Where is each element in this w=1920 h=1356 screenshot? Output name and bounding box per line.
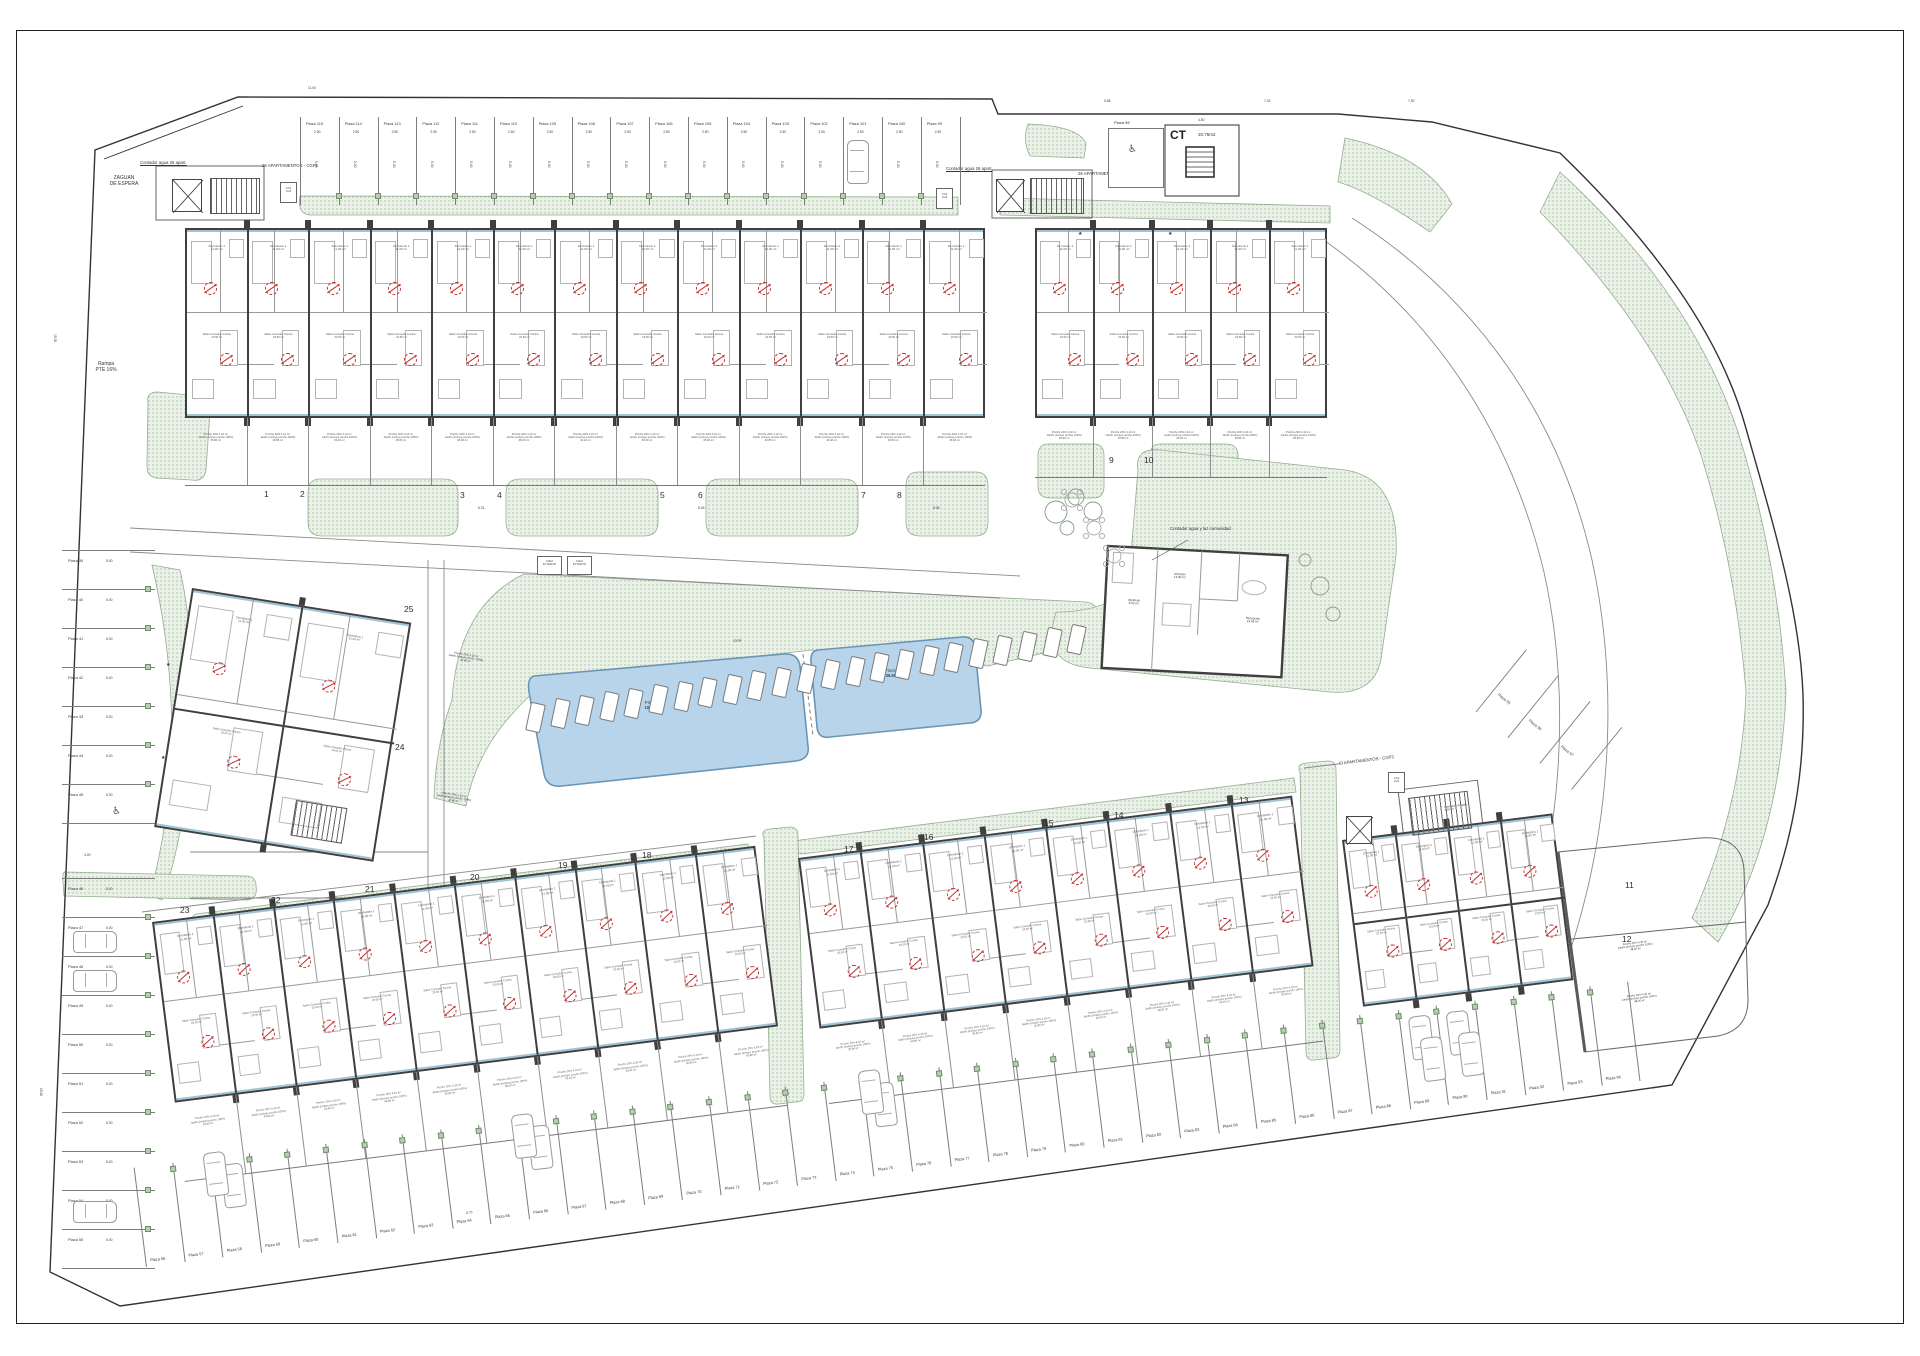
stall-divider <box>455 117 456 205</box>
red-marker-icon <box>297 954 312 969</box>
garden-label: Porche 20% 4.10 m² Jardín (incluye porch… <box>1193 990 1255 1007</box>
plaza-label: Plaza 62 <box>380 1227 396 1234</box>
room-label: Salón-Comedor-Cocina 23.50 m² <box>556 334 616 340</box>
building-outline: Dormitorio 1 11.00 m²Salón-Comedor-Cocin… <box>1035 228 1327 418</box>
stall-divider <box>843 117 844 205</box>
room-label: Salón-Comedor-Cocina 23.50 m² <box>864 334 924 340</box>
stall-planter <box>1242 1032 1249 1039</box>
sofa-icon <box>539 1016 563 1038</box>
stall-depth-dim: 5.00 <box>106 965 112 969</box>
red-marker-icon <box>1132 864 1147 879</box>
stall-divider <box>62 878 155 879</box>
stall-planter <box>476 1127 483 1134</box>
sofa-icon <box>192 379 214 400</box>
partition-wall <box>1057 894 1117 903</box>
red-marker-icon <box>909 956 924 971</box>
unit-cell: Dormitorio 1 11.00 m²Salón-Comedor-Cocin… <box>925 230 987 416</box>
red-marker-icon <box>720 901 735 916</box>
stall-divider <box>649 117 650 205</box>
red-marker-icon <box>1280 909 1295 924</box>
block-number: 22 <box>271 895 280 905</box>
garden-label: Porche 20% 4.10 m² Jardín (incluye porch… <box>884 1029 946 1046</box>
cc-luz-box: CC1 LUZ <box>280 182 297 203</box>
stall-planter <box>1395 1013 1402 1020</box>
wall-stub <box>450 876 457 885</box>
garden-label: Porche 20% 4.10 m² Jardín (incluye porch… <box>678 433 739 443</box>
partition-wall <box>405 964 463 972</box>
dimension-label: 6.31 <box>478 506 484 510</box>
garden-label: Porche 20% 4.10 m² Jardín (incluye porch… <box>359 1089 420 1106</box>
stall-depth-dim: 5.00 <box>586 161 590 167</box>
stall-divider <box>1551 991 1564 1090</box>
partition-wall <box>741 364 766 365</box>
garden-cell: Porche 20% 4.10 m² Jardín (incluye porch… <box>739 418 801 485</box>
plaza-label: Plaza 74 <box>839 1170 855 1177</box>
stall-depth-dim: 5.00 <box>780 161 784 167</box>
plaza-label: Plaza 60 <box>303 1236 319 1243</box>
garden-cell: Porche 20% 4.10 m² Jardín (incluye porch… <box>862 418 924 485</box>
room-label: Dormitorio 1 11.00 m² <box>1095 245 1151 252</box>
star-icon: ★ <box>1078 231 1082 237</box>
sofa-icon <box>376 379 398 400</box>
plaza-label: Plaza 102 <box>810 121 827 126</box>
rampa-label: Rampa PTE 16% <box>84 362 128 374</box>
stall-planter <box>1127 1046 1134 1053</box>
unit-cell: Dormitorio 1 11.00 m²Salón-Comedor-Cocin… <box>1271 230 1329 416</box>
partition-wall <box>1185 230 1186 312</box>
plaza-label: Plaza 94 <box>1605 1074 1621 1081</box>
unit-cell: Dormitorio 1 11.00 m²Salón-Comedor-Cocin… <box>310 230 372 416</box>
red-marker-icon <box>343 353 356 366</box>
plaza-label: Plaza 52 <box>68 1120 83 1125</box>
stall-planter <box>375 193 381 199</box>
stall-planter <box>1050 1056 1057 1063</box>
red-marker-icon <box>696 282 709 295</box>
elevator-icon <box>172 179 202 212</box>
sun-lounger-icon <box>648 684 669 715</box>
sun-lounger-icon <box>919 645 940 676</box>
plaza-label: Plaza 63 <box>418 1222 434 1229</box>
garden-cell: Porche 20% 4.10 m² Jardín (incluye porch… <box>1210 418 1268 477</box>
stall-divider <box>62 589 155 590</box>
star-icon: ★ <box>1168 231 1172 237</box>
wall-stub <box>244 220 250 228</box>
partition-wall <box>889 230 890 312</box>
partition-wall <box>1124 938 1149 942</box>
room-label: Dormitorio 1 11.00 m² <box>1154 245 1210 252</box>
room-label: Dormitorio 1 11.00 m² <box>925 245 987 252</box>
stall-depth-dim: 5.00 <box>624 161 628 167</box>
plaza-label: Plaza 75 <box>878 1165 894 1172</box>
garden-label: Porche 20% 4.10 m² Jardín (incluye porch… <box>801 433 862 443</box>
red-marker-icon <box>774 353 787 366</box>
garden-label: Porche 20% 4.10 m² Jardín (incluye porch… <box>238 1105 299 1122</box>
sofa-icon <box>1365 969 1386 990</box>
red-marker-icon <box>573 282 586 295</box>
garden-band: Porche 20% 4.10 m² Jardín (incluye porch… <box>1035 418 1327 478</box>
partition-wall <box>343 230 344 312</box>
plaza-label: Plaza 113 <box>384 121 401 126</box>
stall-divider <box>921 117 922 205</box>
garden-cell: Porche 20% 4.10 m² Jardín (incluye porch… <box>616 418 678 485</box>
stall-planter <box>246 1156 253 1163</box>
plaza-label: Plaza 71 <box>724 1184 740 1191</box>
partition-wall <box>1236 230 1237 312</box>
plaza-label: Plaza 112 <box>422 121 439 126</box>
stall-divider <box>134 1168 147 1267</box>
unit-cell: Dormitorio 1 11.00 m²Salón-Comedor-Cocin… <box>187 230 249 416</box>
stall-planter <box>145 586 151 592</box>
stall-depth-dim: 5.00 <box>106 1004 112 1008</box>
sun-lounger-icon <box>943 641 964 672</box>
stall-planter <box>1433 1008 1440 1015</box>
plaza-label: Plaza 96 <box>1528 718 1543 731</box>
red-marker-icon <box>418 939 433 954</box>
block-number: 10 <box>1144 455 1153 465</box>
plaza-label: Plaza 99 <box>927 121 942 126</box>
stall-depth-dim: 5.00 <box>935 161 939 167</box>
stall-planter <box>145 781 151 787</box>
sun-lounger-icon <box>550 698 571 729</box>
garden-label: Porche 20% 4.10 m² Jardín (incluye porch… <box>185 433 247 443</box>
wall-stub <box>856 842 863 851</box>
stall-depth-dim: 5.00 <box>314 161 318 167</box>
block-number: 9 <box>1109 455 1114 465</box>
partition-wall <box>871 918 931 927</box>
stall-planter <box>336 193 342 199</box>
partition-wall <box>643 230 644 312</box>
stall-planter <box>821 1084 828 1091</box>
plaza-label: Plaza 115 <box>306 121 323 126</box>
stall-divider <box>62 1190 155 1191</box>
stall-divider <box>378 117 379 205</box>
plaza-label: Plaza 105 <box>694 121 711 126</box>
stall-depth-dim: 5.00 <box>741 161 745 167</box>
partition-wall <box>1095 312 1151 313</box>
garden-label: Porche 20% 4.10 m² Jardín (incluye porch… <box>1131 998 1193 1015</box>
red-marker-icon <box>358 947 373 962</box>
red-marker-icon <box>1032 941 1047 956</box>
sun-lounger-icon <box>771 666 792 697</box>
room-label: Salón-Comedor-Cocina 23.50 m² <box>741 334 801 340</box>
stall-planter <box>1548 994 1555 1001</box>
plaza-label: Plaza 76 <box>916 1160 932 1167</box>
plaza-label: Plaza 44 <box>68 753 83 758</box>
wall-stub <box>260 844 267 853</box>
red-marker-icon <box>1094 933 1109 948</box>
partition-wall <box>287 711 397 729</box>
car-icon <box>847 140 869 184</box>
garden-cell: Porche 20% 4.10 m² Jardín (incluye porch… <box>1190 974 1261 1056</box>
block-number: 4 <box>497 490 502 500</box>
unit-cell: Dormitorio 1 11.00 m²Salón-Comedor-Cocin… <box>618 230 680 416</box>
dimension-label: 5.88 <box>1104 99 1110 103</box>
room-label: Salón-Comedor-Cocina 23.50 m² <box>1212 334 1268 340</box>
plaza-label: Plaza 104 <box>733 121 750 126</box>
block-number: 3 <box>460 490 465 500</box>
contador-26-left-label: Contador agua 26 apart. <box>140 161 187 166</box>
stall-divider <box>62 1073 155 1074</box>
room-label: Salón-Comedor-Cocina 23.50 m² <box>187 334 247 340</box>
stall-depth-dim: 5.00 <box>106 1082 112 1086</box>
partition-wall <box>372 312 432 313</box>
wall-stub <box>1090 220 1096 228</box>
partition-wall <box>276 777 322 785</box>
plaza-label: Plaza 84 <box>1222 1122 1238 1129</box>
sofa-icon <box>807 379 829 400</box>
sofa-icon <box>746 379 768 400</box>
partition-wall <box>679 312 739 313</box>
building-outline: Dormitorio 1 11.00 m²Salón-Comedor-Cocin… <box>154 588 411 862</box>
room-label: Dormitorio 1 11.00 m² <box>1037 245 1093 252</box>
stall-width-dim: 2.50 <box>547 130 553 134</box>
partition-wall <box>1412 950 1433 954</box>
stall-planter <box>1165 1042 1172 1049</box>
unit-cell: Dormitorio 1 11.00 m²Salón-Comedor-Cocin… <box>1212 230 1270 416</box>
red-marker-icon <box>599 916 614 931</box>
garden-label: Porche 20% 4.10 m² Jardín (incluye porch… <box>1270 431 1327 441</box>
stall-divider <box>1513 996 1526 1095</box>
sun-lounger-icon <box>1017 631 1038 662</box>
block-number: 23 <box>180 905 189 915</box>
building-outline: Dormitorio 1 11.00 m²Salón-Comedor-Cocin… <box>1342 813 1573 1006</box>
partition-wall <box>593 994 618 998</box>
dimension-label: 4.80 <box>1198 118 1204 122</box>
partition-wall <box>433 312 493 313</box>
dimension-label: 8.45 <box>698 506 704 510</box>
stall-divider <box>62 995 155 996</box>
stall-planter <box>607 193 613 199</box>
dimension-label: 7.50 <box>1408 99 1414 103</box>
partition-wall <box>220 230 221 312</box>
sun-lounger-icon <box>574 695 595 726</box>
room-label: Dormitorio 1 11.00 m² <box>372 245 432 252</box>
partition-wall <box>618 364 643 365</box>
partition-wall <box>1212 312 1268 313</box>
plaza-label: Plaza 95 <box>1496 692 1511 705</box>
wall-stub <box>490 220 496 228</box>
garden-label: Porche 20% 4.10 m² Jardín (incluye porch… <box>740 433 801 443</box>
block-number: 15 <box>1044 818 1053 828</box>
garden-cell: Porche 20% 4.10 m² Jardín (incluye porch… <box>416 1064 486 1150</box>
plaza-label: Plaza 108 <box>578 121 595 126</box>
garden-label: Porche 20% 4.10 m² Jardín (incluye porch… <box>1035 431 1093 441</box>
stall-planter <box>1472 1003 1479 1010</box>
partition-wall <box>647 933 705 941</box>
sofa-icon <box>1042 379 1063 400</box>
plaza-label: Plaza 56 <box>150 1256 166 1263</box>
wall-stub <box>859 220 865 228</box>
plaza-label: Plaza 43 <box>68 714 83 719</box>
stall-width-dim: 2.50 <box>508 130 514 134</box>
block-number: 7 <box>861 490 866 500</box>
red-marker-icon <box>659 909 674 924</box>
stall-planter <box>801 193 807 199</box>
partition-wall <box>1037 312 1093 313</box>
wall-stub <box>1103 811 1110 820</box>
garden-cell: Porche 20% 4.10 m² Jardín (incluye porch… <box>370 418 432 485</box>
partition-wall <box>864 364 889 365</box>
unit-cell: Dormitorio 1 11.00 m²Salón-Comedor-Cocin… <box>1037 230 1095 416</box>
room-label: Salón-Comedor-Cocina 23.50 m² <box>1154 334 1210 340</box>
red-marker-icon <box>1303 353 1316 366</box>
partition-wall <box>285 979 343 987</box>
car-icon <box>1419 1036 1446 1082</box>
red-marker-icon <box>943 282 956 295</box>
stall-depth-dim: 5.00 <box>896 161 900 167</box>
plaza-label: Plaza 69 <box>648 1194 664 1201</box>
stall-divider <box>62 706 155 707</box>
stall-width-dim: 2.50 <box>857 130 863 134</box>
plaza-label: Plaza 42 <box>68 675 83 680</box>
stall-divider <box>62 1112 155 1113</box>
star-icon: ★ <box>166 662 170 668</box>
stall-planter <box>323 1147 330 1154</box>
block-number: 1 <box>264 489 269 499</box>
wall-stub <box>1266 220 1272 228</box>
stall-planter <box>145 992 151 998</box>
red-marker-icon <box>1522 864 1537 879</box>
stall-width-dim: 2.50 <box>430 130 436 134</box>
stall-planter <box>1357 1018 1364 1025</box>
garden-label: Porche 20% 4.10 m² Jardín (incluye porch… <box>494 433 555 443</box>
plaza-label: Plaza 59 <box>265 1241 281 1248</box>
partition-wall <box>274 230 275 312</box>
plaza-label: Plaza 50 <box>68 1042 83 1047</box>
sofa-icon <box>599 1008 623 1030</box>
unit-cell: Dormitorio 1 11.00 m²Salón-Comedor-Cocin… <box>249 230 311 416</box>
stall-depth-dim: 5.00 <box>106 598 112 602</box>
garden-label: Porche 20% 4.10 m² Jardín (incluye porch… <box>661 1051 722 1068</box>
stall-planter <box>145 664 151 670</box>
room-label: Dormitorio 1 11.00 m² <box>1271 245 1329 252</box>
plaza-label: Plaza 83 <box>1184 1127 1200 1134</box>
partition-wall <box>1119 230 1120 312</box>
sofa-icon <box>1217 379 1238 400</box>
car-icon <box>73 931 117 953</box>
sofa-icon <box>659 1001 683 1023</box>
red-marker-icon <box>1070 871 1085 886</box>
stall-divider <box>339 117 340 205</box>
stall-planter <box>1318 1022 1325 1029</box>
sun-lounger-icon <box>1066 624 1087 655</box>
plaza-label: Plaza 77 <box>954 1155 970 1162</box>
stall-divider <box>62 784 155 785</box>
partition-wall <box>520 230 521 312</box>
stall-planter <box>724 193 730 199</box>
stall-planter <box>706 1099 713 1106</box>
plaza-label: Plaza 107 <box>616 121 633 126</box>
plaza-label: Plaza 79 <box>1031 1146 1047 1153</box>
stall-divider <box>62 628 155 629</box>
partition-wall <box>1517 936 1539 940</box>
car-icon <box>1457 1031 1484 1077</box>
wall-stub <box>613 220 619 228</box>
stall-depth-dim: 5.00 <box>663 161 667 167</box>
wall-stub <box>428 220 434 228</box>
dimension-label: 23.96 <box>733 638 742 643</box>
sofa-icon <box>358 1039 382 1061</box>
stall-width-dim: 2.50 <box>780 130 786 134</box>
block-number: 6 <box>698 490 703 500</box>
red-marker-icon <box>946 887 961 902</box>
partition-wall <box>707 925 767 934</box>
block-18-23: Dormitorio 1 11.00 m²Salón-Comedor-Cocin… <box>152 846 788 1182</box>
block-number: 19 <box>558 860 567 870</box>
stall-depth-dim: 5.00 <box>353 161 357 167</box>
wall-stub <box>367 220 373 228</box>
block-number: 13 <box>1239 795 1248 805</box>
red-marker-icon <box>1185 353 1198 366</box>
stall-divider <box>610 117 611 205</box>
block-number: 11 <box>1625 880 1634 890</box>
red-marker-icon <box>1256 848 1271 863</box>
plaza-label: Plaza 92 <box>1529 1084 1545 1091</box>
garden-label: Porche 20% 4.10 m² Jardín (incluye porch… <box>248 433 309 443</box>
red-marker-icon <box>539 924 554 939</box>
stall-width-dim: 2.50 <box>935 130 941 134</box>
stall-width-dim: 2.50 <box>896 130 902 134</box>
stall-divider <box>300 117 301 205</box>
red-marker-icon <box>204 282 217 295</box>
partition-wall <box>933 910 993 919</box>
plaza-label: Plaza 88 <box>1376 1103 1392 1110</box>
block-number: 14 <box>1114 810 1123 820</box>
aseo-exterior-2: ASEO EXTERIOR <box>567 556 592 575</box>
block-number: 20 <box>470 872 479 882</box>
partition-wall <box>995 902 1055 911</box>
red-marker-icon <box>712 353 725 366</box>
garden-label: Porche 20% 4.10 m² Jardín (incluye porch… <box>1094 431 1151 441</box>
plaza-label: Plaza 110 <box>500 121 517 126</box>
stall-depth-dim: 5.00 <box>106 887 112 891</box>
partition-wall <box>1303 230 1304 312</box>
garden-label: Porche 20% 4.10 m² Jardín (incluye porch… <box>540 1066 601 1083</box>
plaza-label: Plaza 103 <box>772 121 789 126</box>
room-label: Recepción 23.65 m² <box>1228 616 1278 625</box>
wall-stub <box>736 220 742 228</box>
stall-divider <box>62 956 155 957</box>
partition-wall <box>1095 364 1119 365</box>
plaza-label: Plaza 40 <box>68 597 83 602</box>
unit-cell: Dormitorio 1 11.00 m²Salón-Comedor-Cocin… <box>741 230 803 416</box>
room-label: Salón-Comedor-Cocina 23.50 m² <box>925 334 987 340</box>
room-label: Salón-Comedor-Cocina 23.50 m² <box>1271 334 1329 340</box>
room-label: Dormitorio 1 11.00 m² <box>495 245 555 252</box>
garden-cell: Porche 20% 4.10 m² Jardín (incluye porch… <box>1269 418 1327 477</box>
partition-wall <box>1242 871 1304 880</box>
garden-label: Porche 20% 4.10 m² Jardín (incluye porch… <box>419 788 490 808</box>
aseo-exterior-1: ASEO EXTERIOR <box>537 556 562 575</box>
wall-stub <box>979 826 986 835</box>
room-label: Dormitorio 1 11.00 m² <box>618 245 678 252</box>
stall-divider <box>62 550 155 551</box>
stall-planter <box>145 1031 151 1037</box>
room-label: Salón-Comedor-Cocina 23.50 m² <box>1037 334 1093 340</box>
cgp1-block: Dormitorio 1 11.00 m²Salón-Comedor-Cocin… <box>185 228 985 486</box>
sofa-icon <box>1254 935 1279 957</box>
partition-wall <box>164 994 222 1002</box>
plaza-label: Plaza 82 <box>1146 1132 1162 1139</box>
stall-depth-dim: 5.00 <box>106 1121 112 1125</box>
stall-width-dim: 2.50 <box>741 130 747 134</box>
plaza-label: Plaza 114 <box>345 121 362 126</box>
room-label: Dormitorio 1 11.00 m² <box>802 245 862 252</box>
garden-cell: Porche 20% 4.10 m² Jardín (incluye porch… <box>800 418 862 485</box>
stall-planter <box>452 193 458 199</box>
dimension-label: 11.00 <box>308 86 316 90</box>
red-marker-icon <box>819 282 832 295</box>
